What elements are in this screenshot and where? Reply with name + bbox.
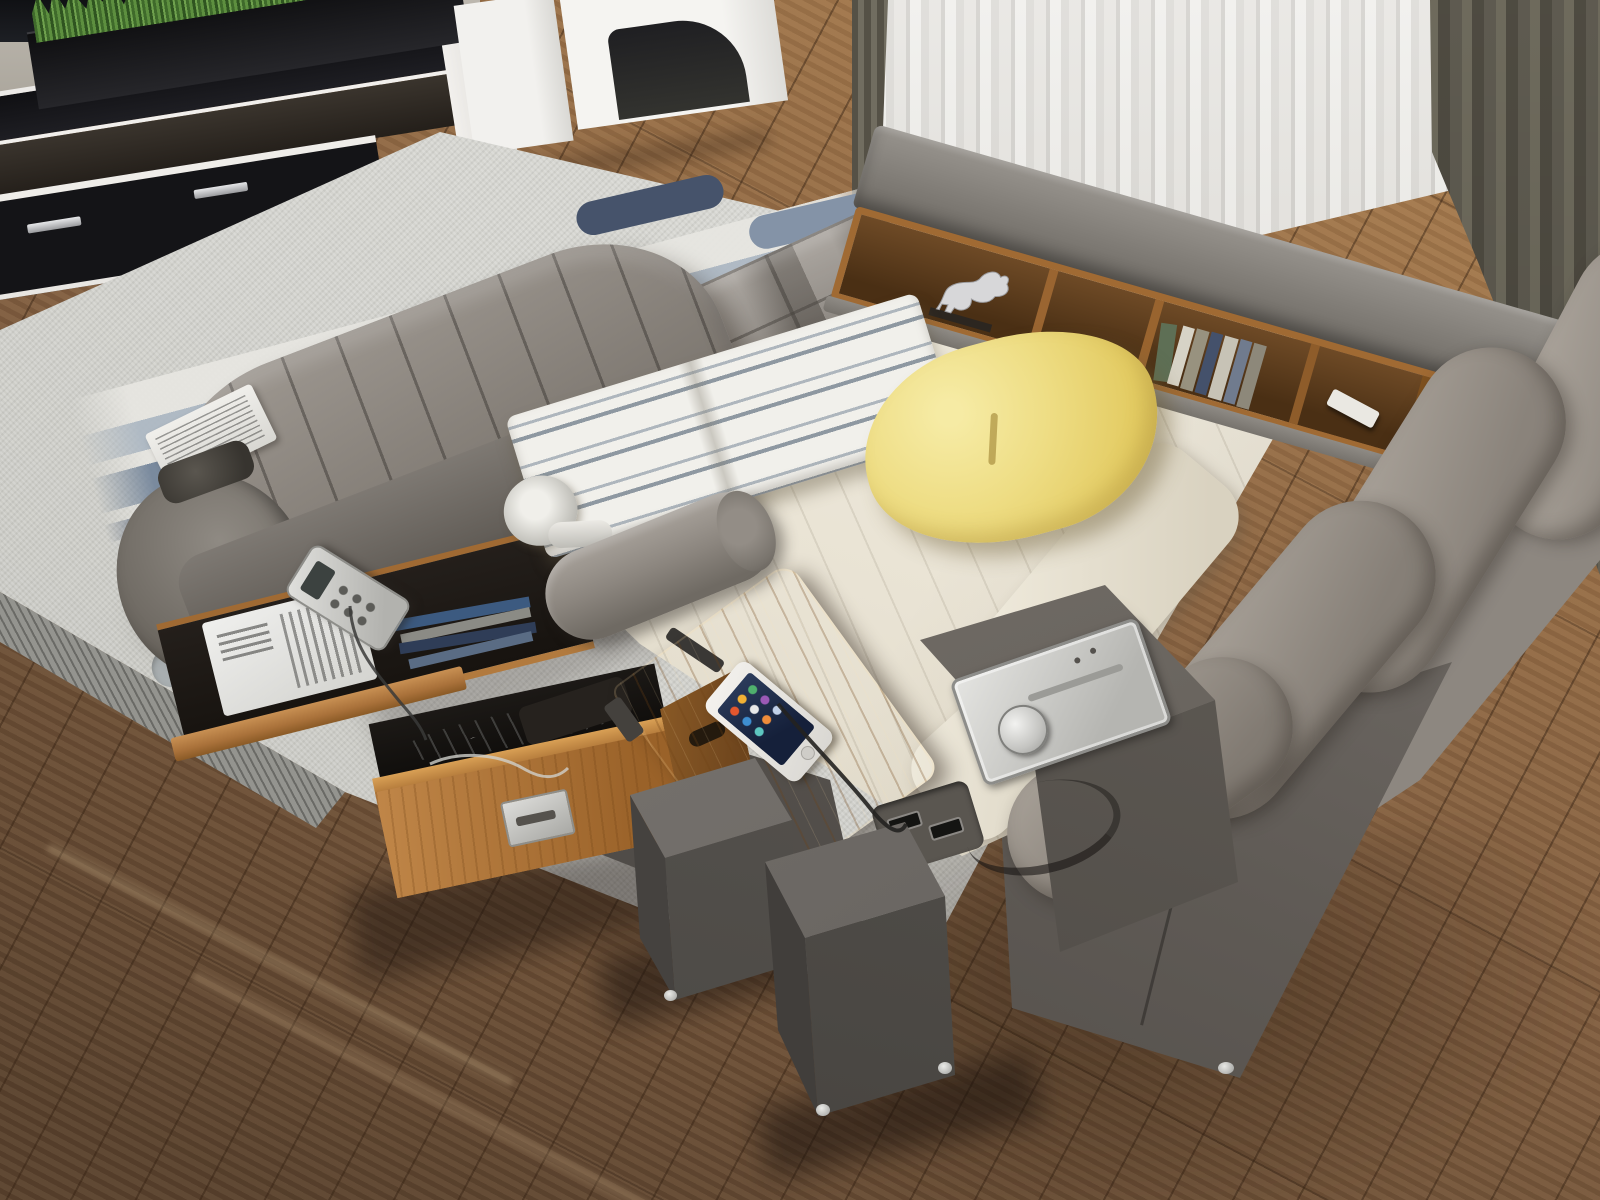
- shelf-white-item: [1326, 388, 1380, 428]
- white-bench-panel: [454, 0, 574, 154]
- bed-foot-glide: [1218, 1062, 1234, 1074]
- drawer-handle-slot: [515, 809, 556, 826]
- bedroom-scene: [0, 0, 1600, 1200]
- smartphone-home-button: [798, 743, 818, 763]
- usb-port: [928, 816, 965, 841]
- ottoman-foot: [664, 990, 677, 1001]
- pillow-crease: [988, 413, 998, 465]
- volume-knob: [991, 698, 1055, 762]
- panel-led-dot: [1089, 647, 1097, 655]
- panel-led-dot: [1074, 657, 1082, 665]
- ottoman-foot: [938, 1062, 952, 1074]
- ottoman-foot: [816, 1104, 830, 1116]
- panel-slit: [1027, 663, 1124, 702]
- appliance-controls: [216, 620, 274, 662]
